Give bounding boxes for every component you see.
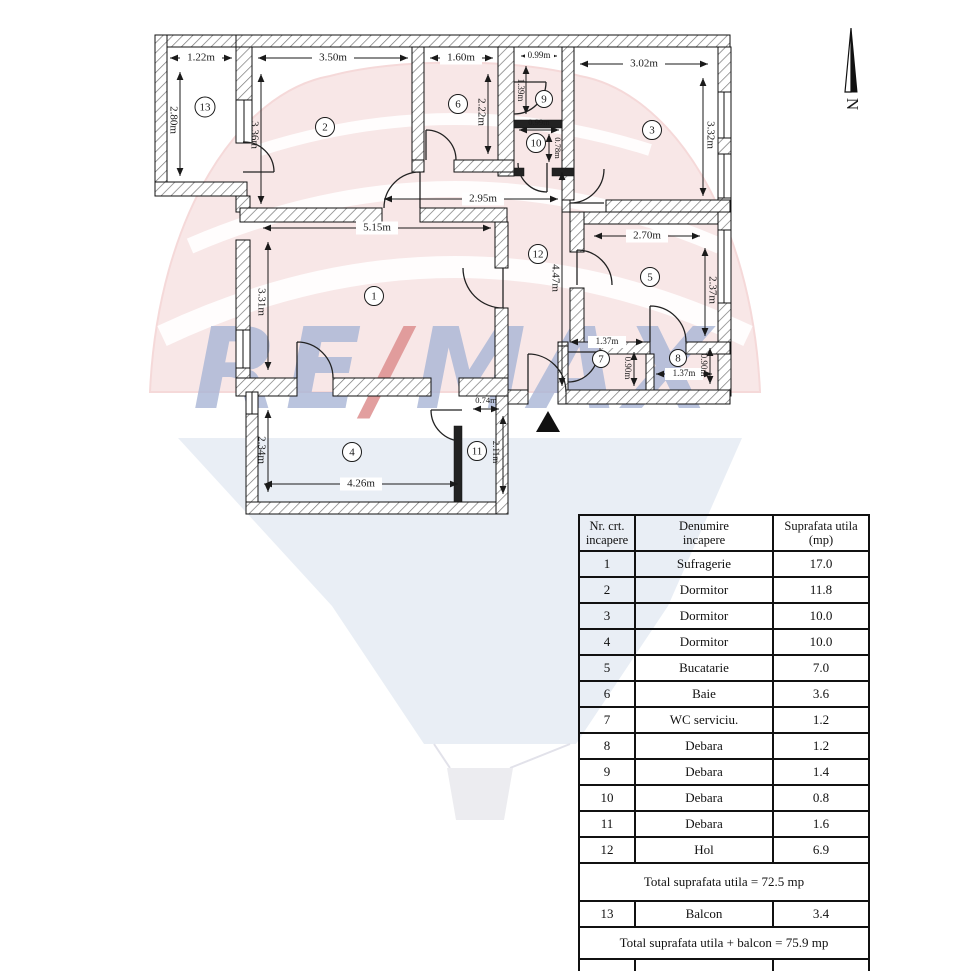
cell-name: Bucatarie bbox=[635, 655, 773, 681]
room-number: 13 bbox=[200, 102, 212, 114]
dim-label: 2.11m bbox=[491, 441, 501, 463]
cell-area: 7.0 bbox=[773, 655, 869, 681]
room-number: 9 bbox=[541, 94, 547, 106]
cell-nr: 13 bbox=[579, 901, 635, 927]
dim-label: 1.60m bbox=[447, 52, 475, 64]
dim-label: 4.47m bbox=[549, 264, 561, 292]
cell-nr: 8 bbox=[579, 733, 635, 759]
dim-label: 2.34m bbox=[255, 436, 267, 464]
remax-watermark-text: RE/MAX bbox=[193, 305, 717, 435]
header-denumire: Denumireincapere bbox=[635, 515, 773, 551]
dim-label: 4.26m bbox=[347, 478, 375, 490]
cell-name: Baie bbox=[635, 681, 773, 707]
cell-empty bbox=[773, 959, 869, 971]
cell-name: WC serviciu. bbox=[635, 707, 773, 733]
table-row: 7WC serviciu.1.2 bbox=[579, 707, 869, 733]
dim-label: 3.32m bbox=[704, 121, 716, 149]
table-row: 4Dormitor10.0 bbox=[579, 629, 869, 655]
room-number: 1 bbox=[371, 291, 377, 303]
cell-nr: 2 bbox=[579, 577, 635, 603]
cell-area: 1.2 bbox=[773, 707, 869, 733]
dim-label: 2.95m bbox=[469, 193, 497, 205]
cell-name: Dormitor bbox=[635, 577, 773, 603]
dim-label: 2.70m bbox=[633, 230, 661, 242]
cell-name: Debara bbox=[635, 759, 773, 785]
cell-name: Sufragerie bbox=[635, 551, 773, 577]
partial-row bbox=[579, 959, 869, 971]
cell-area: 1.6 bbox=[773, 811, 869, 837]
table-row: 11Debara1.6 bbox=[579, 811, 869, 837]
dim-label: 3.36m bbox=[248, 121, 260, 149]
dim-label: 3.31m bbox=[255, 288, 267, 316]
floorplan-page: RE/MAX bbox=[0, 0, 960, 937]
total-utila-row: Total suprafata utila = 72.5 mp bbox=[579, 863, 869, 901]
cell-nr: 10 bbox=[579, 785, 635, 811]
cell-area: 0.8 bbox=[773, 785, 869, 811]
table-row: 9Debara1.4 bbox=[579, 759, 869, 785]
dim-label: 2.80m bbox=[167, 106, 179, 134]
cell-area: 17.0 bbox=[773, 551, 869, 577]
cell-nr: 7 bbox=[579, 707, 635, 733]
dim-label: 1.37m bbox=[596, 336, 619, 346]
cell-nr: 6 bbox=[579, 681, 635, 707]
table-row-balcon: 13 Balcon 3.4 bbox=[579, 901, 869, 927]
dim-label: 1.22m bbox=[187, 52, 215, 64]
cell-area: 3.6 bbox=[773, 681, 869, 707]
dim-label: 2.22m bbox=[475, 98, 487, 126]
total-cu-balcon-label: Total suprafata utila + balcon = 75.9 mp bbox=[579, 927, 869, 959]
cell-empty bbox=[579, 959, 635, 971]
dim-label: 0.99m bbox=[528, 50, 551, 60]
cell-area: 10.0 bbox=[773, 603, 869, 629]
cell-empty bbox=[635, 959, 773, 971]
dim-label: 1.37m bbox=[673, 368, 696, 378]
table-row: 5Bucatarie7.0 bbox=[579, 655, 869, 681]
cell-nr: 1 bbox=[579, 551, 635, 577]
cell-name: Dormitor bbox=[635, 629, 773, 655]
dim-label: 2.37m bbox=[706, 276, 718, 304]
room-number: 5 bbox=[647, 272, 653, 284]
cell-name: Hol bbox=[635, 837, 773, 863]
table-row: 6Baie3.6 bbox=[579, 681, 869, 707]
dim-label: 5.15m bbox=[363, 222, 391, 234]
cell-area: 11.8 bbox=[773, 577, 869, 603]
room-number: 8 bbox=[675, 353, 681, 365]
cell-nr: 5 bbox=[579, 655, 635, 681]
header-nr-crt: Nr. crt.incapere bbox=[579, 515, 635, 551]
dim-label: 0.74m bbox=[475, 395, 497, 405]
cell-name: Balcon bbox=[635, 901, 773, 927]
cell-nr: 11 bbox=[579, 811, 635, 837]
room-number: 6 bbox=[455, 99, 461, 111]
room-number: 10 bbox=[531, 138, 543, 150]
dim-label: 1.39m bbox=[516, 79, 526, 102]
dim-label: 0.90m bbox=[699, 354, 709, 377]
dim-label: 0.90m bbox=[623, 357, 633, 380]
cell-area: 1.2 bbox=[773, 733, 869, 759]
dim-label: 0.99m bbox=[528, 117, 550, 127]
dim-label: 0.78m bbox=[553, 137, 563, 159]
cell-area: 1.4 bbox=[773, 759, 869, 785]
cell-name: Debara bbox=[635, 785, 773, 811]
dim-label: 3.50m bbox=[319, 52, 347, 64]
cell-nr: 12 bbox=[579, 837, 635, 863]
total-cu-balcon-row: Total suprafata utila + balcon = 75.9 mp bbox=[579, 927, 869, 959]
total-utila-label: Total suprafata utila = 72.5 mp bbox=[579, 863, 869, 901]
dim-label: 3.02m bbox=[630, 58, 658, 70]
cell-area: 10.0 bbox=[773, 629, 869, 655]
cell-name: Debara bbox=[635, 733, 773, 759]
table-row: 12Hol6.9 bbox=[579, 837, 869, 863]
balloon-basket bbox=[447, 768, 513, 820]
room-number: 11 bbox=[472, 446, 483, 458]
table-row: 1Sufragerie17.0 bbox=[579, 551, 869, 577]
room-number: 4 bbox=[349, 447, 355, 459]
north-arrow-icon: N bbox=[843, 28, 862, 110]
north-label: N bbox=[843, 98, 862, 110]
header-suprafata: Suprafata utila(mp) bbox=[773, 515, 869, 551]
room-number: 12 bbox=[533, 249, 544, 261]
cell-area: 6.9 bbox=[773, 837, 869, 863]
table-row: 10Debara0.8 bbox=[579, 785, 869, 811]
cell-name: Dormitor bbox=[635, 603, 773, 629]
cell-nr: 3 bbox=[579, 603, 635, 629]
table-row: 2Dormitor11.8 bbox=[579, 577, 869, 603]
cell-area: 3.4 bbox=[773, 901, 869, 927]
cell-name: Debara bbox=[635, 811, 773, 837]
room-number: 3 bbox=[649, 125, 655, 137]
table-header-row: Nr. crt.incapere Denumireincapere Supraf… bbox=[579, 515, 869, 551]
cell-nr: 9 bbox=[579, 759, 635, 785]
table-row: 8Debara1.2 bbox=[579, 733, 869, 759]
room-number: 2 bbox=[322, 122, 328, 134]
room-areas-table: Nr. crt.incapere Denumireincapere Supraf… bbox=[578, 514, 870, 971]
cell-nr: 4 bbox=[579, 629, 635, 655]
room-number: 7 bbox=[598, 354, 604, 366]
table-row: 3Dormitor10.0 bbox=[579, 603, 869, 629]
